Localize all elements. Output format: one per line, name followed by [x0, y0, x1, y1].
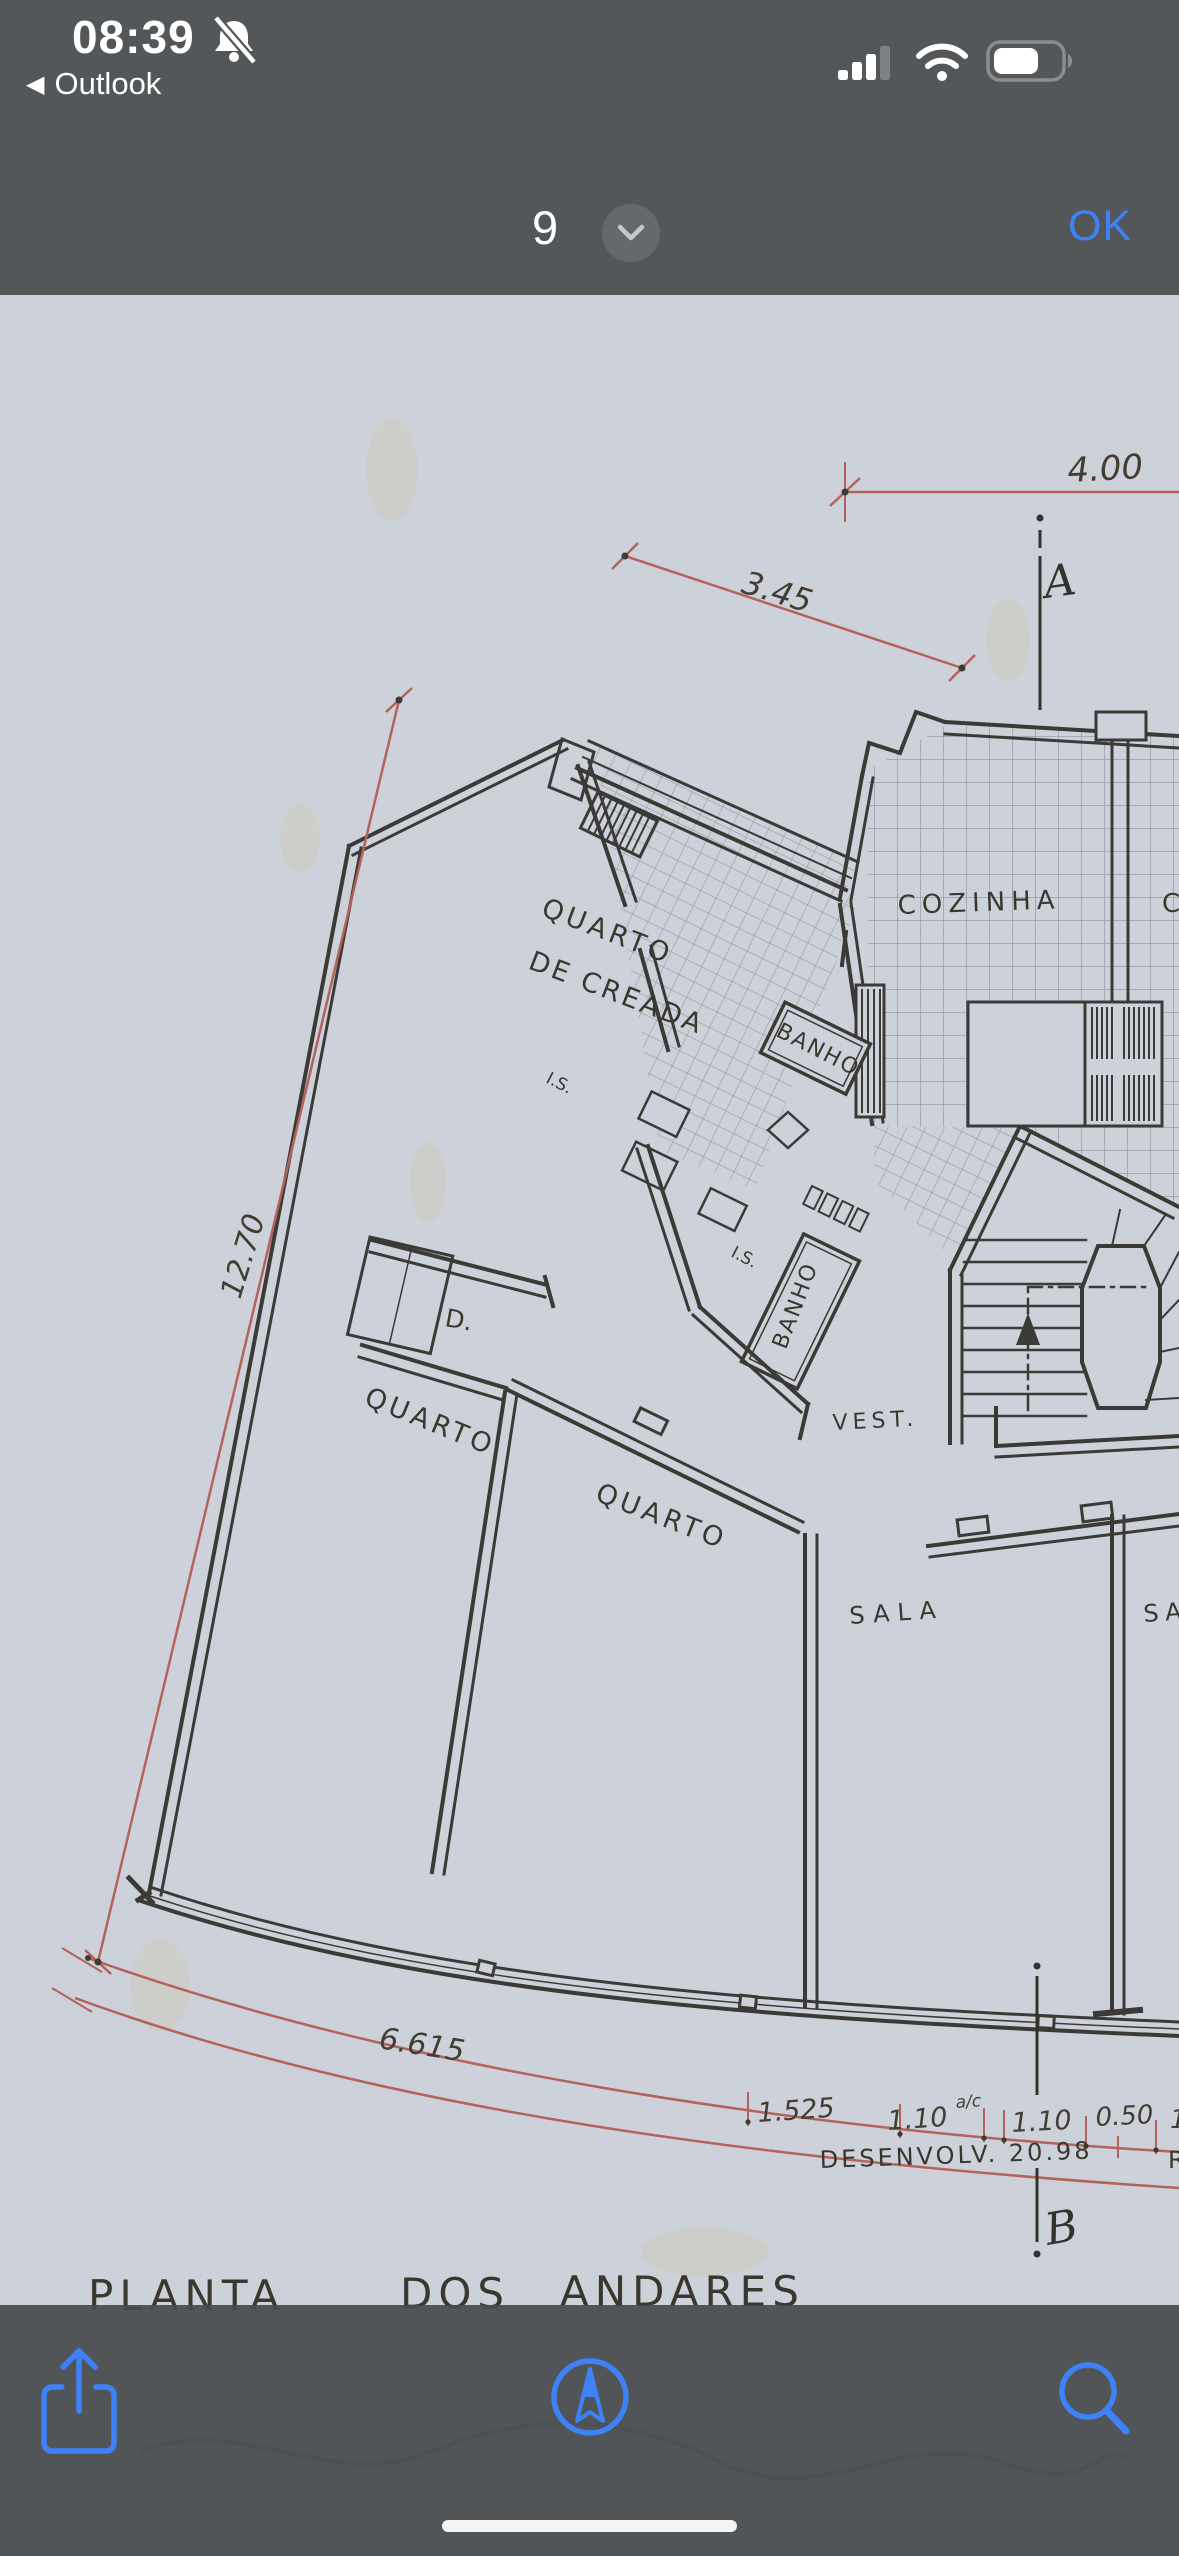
chevron-down-icon [616, 223, 646, 243]
back-chevron-icon: ◀ [26, 69, 44, 100]
dim-4-00: 4.00 [1066, 447, 1144, 491]
room-d-closet: D. [443, 1303, 475, 1336]
room-cozinha-partial: C [1162, 889, 1179, 919]
room-cozinha: COZINHA [897, 885, 1061, 921]
share-button[interactable] [40, 2345, 118, 2455]
room-sala-2-partial: SA [1142, 1597, 1179, 1628]
back-app-label: Outlook [54, 66, 161, 102]
bottom-toolbar [0, 2305, 1179, 2556]
bell-slash-icon [212, 16, 256, 69]
dim-desenvolv-partial: R [1168, 2146, 1179, 2174]
room-vest: VEST. [832, 1407, 919, 1436]
markup-button[interactable] [548, 2355, 632, 2439]
iphone-screen: 4.00 3.45 12.70 6.615 1.525 1.10 a/c 1.1… [0, 0, 1179, 2556]
dim-1-10-b: 1.10 [1011, 2105, 1073, 2139]
page-selector-button[interactable] [602, 204, 660, 262]
cellular-signal-icon [836, 42, 898, 82]
dim-0-50: 0.50 [1095, 2100, 1154, 2133]
home-indicator[interactable] [442, 2520, 737, 2532]
floorplan-image[interactable]: 4.00 3.45 12.70 6.615 1.525 1.10 a/c 1.1… [0, 0, 1179, 2556]
top-chrome: 08:39 ◀ Outlook [0, 0, 1179, 295]
dim-partial-right: 1. [1170, 2105, 1179, 2135]
back-to-outlook[interactable]: ◀ Outlook [26, 66, 161, 102]
wifi-icon [914, 42, 970, 82]
status-time: 08:39 [72, 10, 195, 64]
ok-button[interactable]: OK [1068, 202, 1132, 251]
dim-1-525: 1.525 [756, 2093, 835, 2129]
dim-1-10-a: 1.10 [886, 2102, 948, 2137]
dim-ac-sup: a/c [955, 2091, 982, 2113]
battery-icon [986, 40, 1076, 82]
search-button[interactable] [1052, 2357, 1136, 2443]
page-indicator: 9 [532, 200, 558, 255]
status-icons [836, 40, 1076, 82]
